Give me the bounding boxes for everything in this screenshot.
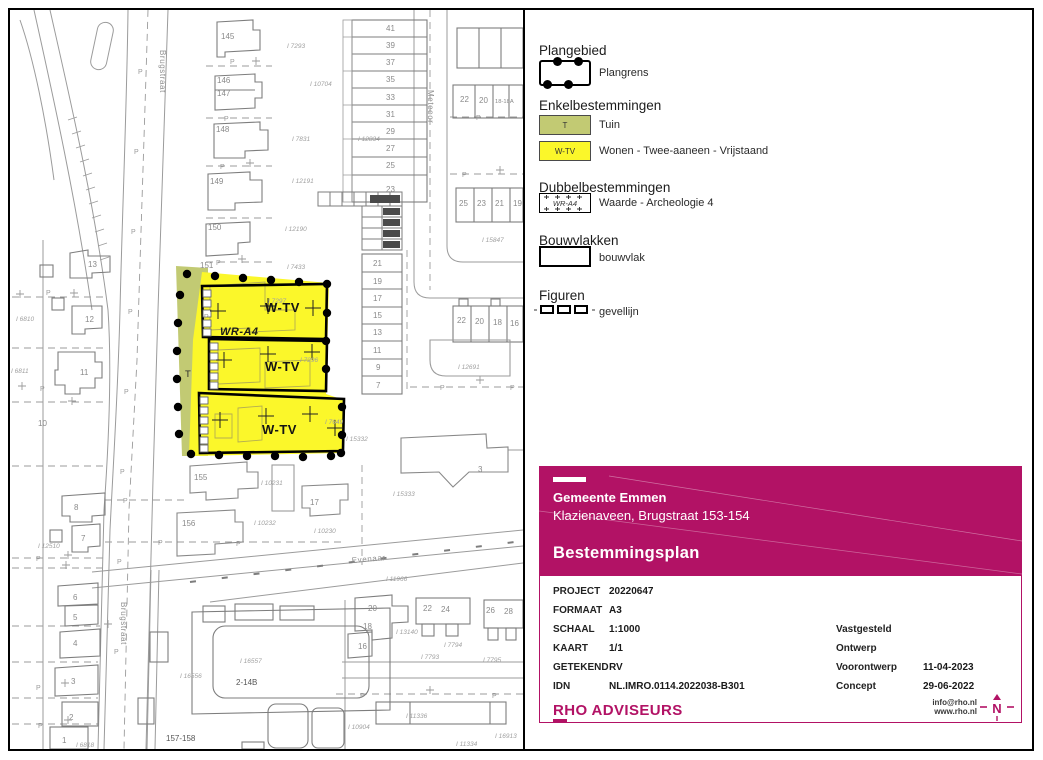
svg-text:23: 23 — [386, 185, 395, 194]
svg-text:I 12190: I 12190 — [285, 226, 307, 233]
svg-text:23: 23 — [477, 199, 486, 208]
svg-text:I 7649: I 7649 — [325, 419, 343, 426]
gevellijn-end-dot — [592, 309, 595, 311]
plan-area: W-TV W-TV W-TV WR-A4 T — [173, 266, 346, 461]
svg-text:20: 20 — [368, 604, 377, 613]
info-label: SCHAAL — [553, 624, 595, 635]
svg-text:19: 19 — [513, 199, 522, 208]
info-value: 20220647 — [609, 586, 654, 597]
svg-text:I 6818: I 6818 — [76, 742, 94, 749]
svg-text:17: 17 — [310, 498, 319, 507]
svg-text:7: 7 — [376, 381, 381, 390]
contact-website: www.rho.nl — [932, 707, 977, 716]
svg-text:17: 17 — [373, 294, 382, 303]
svg-text:8: 8 — [74, 503, 79, 512]
svg-text:I 10704: I 10704 — [310, 81, 332, 88]
svg-text:I 16556: I 16556 — [180, 673, 202, 680]
street-evenaar: Evenaar — [351, 553, 386, 565]
svg-text:33: 33 — [386, 93, 395, 102]
svg-text:I 15847: I 15847 — [482, 237, 504, 244]
info-value: A3 — [609, 605, 622, 616]
svg-text:2: 2 — [69, 713, 74, 722]
bouwvlak-swatch — [539, 246, 591, 267]
north-arrow-icon: N — [979, 692, 1015, 722]
svg-text:P: P — [40, 386, 45, 393]
legend-label-bouwvlak: bouwvlak — [599, 252, 645, 264]
svg-text:18: 18 — [363, 622, 372, 631]
svg-text:16: 16 — [510, 319, 519, 328]
zone-label-wtv-3: W-TV — [262, 422, 297, 437]
svg-text:I 6811: I 6811 — [11, 368, 29, 375]
zoning-map: W-TV W-TV W-TV WR-A4 T Brugstraat Brugst… — [10, 10, 523, 749]
svg-text:11: 11 — [373, 346, 382, 355]
municipality: Gemeente Emmen — [553, 490, 666, 505]
svg-text:20: 20 — [475, 317, 484, 326]
legend-title-enkel: Enkelbestemmingen — [539, 98, 661, 113]
svg-text:31: 31 — [386, 110, 395, 119]
svg-text:27: 27 — [386, 144, 395, 153]
svg-text:I 7795: I 7795 — [483, 657, 501, 664]
info-value: 1/1 — [609, 643, 623, 654]
plangrens-symbol — [539, 60, 591, 86]
svg-text:I 7794: I 7794 — [444, 642, 462, 649]
svg-text:P: P — [230, 59, 235, 66]
svg-text:12: 12 — [85, 315, 94, 324]
svg-text:4: 4 — [73, 639, 78, 648]
svg-text:P: P — [128, 309, 133, 316]
svg-text:13: 13 — [88, 260, 97, 269]
sheet-border: W-TV W-TV W-TV WR-A4 T Brugstraat Brugst… — [8, 8, 1034, 751]
status-label: Voorontwerp — [836, 662, 897, 673]
svg-text:156: 156 — [182, 519, 196, 528]
svg-text:I 12834: I 12834 — [358, 136, 380, 143]
svg-text:I 16913: I 16913 — [495, 733, 517, 740]
wra4-swatch: WR-A4 — [539, 193, 591, 213]
svg-text:P: P — [476, 115, 481, 122]
svg-text:150: 150 — [208, 223, 222, 232]
svg-text:21: 21 — [495, 199, 504, 208]
status-label: Vastgesteld — [836, 624, 892, 635]
svg-text:20: 20 — [479, 96, 488, 105]
svg-text:146: 146 — [217, 76, 231, 85]
svg-text:41: 41 — [386, 24, 395, 33]
svg-text:11: 11 — [80, 368, 89, 377]
plan-location: Klazienaveen, Brugstraat 153-154 — [553, 508, 750, 523]
wra4-code: WR-A4 — [540, 199, 590, 208]
svg-text:P: P — [114, 649, 119, 656]
gevellijn-end-dot — [534, 309, 537, 311]
wtv-swatch: W-TV — [539, 141, 591, 161]
svg-text:22: 22 — [457, 316, 466, 325]
legend-title-plangebied: Plangebied — [539, 43, 607, 58]
info-label: PROJECT — [553, 586, 600, 597]
wtv-code: W-TV — [555, 147, 575, 156]
svg-text:24: 24 — [441, 605, 450, 614]
svg-text:39: 39 — [386, 41, 395, 50]
svg-text:7: 7 — [81, 534, 86, 543]
title-block-dash — [553, 477, 586, 482]
title-block: Gemeente Emmen Klazienaveen, Brugstraat … — [539, 466, 1022, 575]
gevellijn-box — [557, 305, 571, 314]
svg-text:22: 22 — [423, 604, 432, 613]
info-value: RV — [609, 662, 623, 673]
svg-text:19: 19 — [373, 277, 382, 286]
svg-text:P: P — [204, 314, 209, 321]
svg-text:1: 1 — [62, 736, 67, 745]
garage-boxes — [318, 192, 402, 250]
svg-text:P: P — [36, 685, 41, 692]
north-letter: N — [992, 701, 1001, 716]
legend-label-tuin: Tuin — [599, 119, 620, 131]
svg-text:I 12510: I 12510 — [38, 543, 60, 550]
info-value: 1:1000 — [609, 624, 640, 635]
street-brugstraat-top: Brugstraat — [158, 50, 167, 93]
gevellijn-box — [540, 305, 554, 314]
project-info-block: PROJECT 20220647 FORMAAT A3 SCHAAL 1:100… — [539, 575, 1022, 723]
plangrens-dot — [564, 80, 573, 89]
svg-text:25: 25 — [386, 161, 395, 170]
plan-type: Bestemmingsplan — [553, 544, 700, 563]
tuin-swatch: T — [539, 115, 591, 135]
legend-label-gevellijn: gevellijn — [599, 306, 639, 318]
status-date: 29-06-2022 — [923, 681, 974, 692]
plangrens-dot — [553, 57, 562, 66]
street-meteoor: Meteoor — [426, 90, 435, 124]
status-label: Ontwerp — [836, 643, 877, 654]
svg-text:37: 37 — [386, 58, 395, 67]
svg-text:P: P — [131, 229, 136, 236]
svg-text:P: P — [440, 385, 445, 392]
contact-info: info@rho.nl www.rho.nl — [932, 698, 977, 716]
svg-text:I 7296: I 7296 — [300, 357, 318, 364]
svg-text:I 13140: I 13140 — [396, 629, 418, 636]
svg-text:I 6810: I 6810 — [16, 316, 34, 323]
zone-label-t: T — [185, 369, 191, 380]
svg-text:P: P — [38, 723, 43, 730]
svg-text:P: P — [36, 556, 41, 563]
svg-text:I 12191: I 12191 — [292, 178, 314, 185]
info-label: GETEKEND — [553, 662, 609, 673]
svg-text:P: P — [236, 541, 241, 548]
svg-text:I 7433: I 7433 — [287, 264, 305, 271]
svg-text:I 10904: I 10904 — [348, 724, 370, 731]
legend-title-figuren: Figuren — [539, 288, 585, 303]
svg-text:P: P — [120, 469, 125, 476]
svg-text:3: 3 — [478, 465, 483, 474]
svg-text:2-14B: 2-14B — [236, 678, 257, 687]
svg-text:147: 147 — [217, 89, 231, 98]
zone-label-wtv-2: W-TV — [265, 359, 300, 374]
plangrens-dot — [574, 57, 583, 66]
svg-text:P: P — [158, 540, 163, 547]
svg-text:I 12691: I 12691 — [458, 364, 480, 371]
svg-text:35: 35 — [386, 75, 395, 84]
svg-text:P: P — [462, 172, 467, 179]
svg-text:21: 21 — [373, 259, 382, 268]
legend-panel: Plangebied Plangrens Enkelbestemmingen T… — [525, 10, 1032, 749]
svg-text:149: 149 — [210, 177, 224, 186]
plangrens-dot — [543, 80, 552, 89]
svg-text:25: 25 — [459, 199, 468, 208]
svg-text:P: P — [220, 164, 225, 171]
svg-text:I 10230: I 10230 — [314, 528, 336, 535]
company-logo-dash — [553, 719, 567, 722]
svg-text:I 7293: I 7293 — [287, 43, 305, 50]
svg-text:P: P — [123, 498, 128, 505]
legend-label-wra4: Waarde - Archeologie 4 — [599, 197, 714, 209]
svg-text:I 11966: I 11966 — [386, 576, 408, 583]
street-brugstraat-bottom: Brugstraat — [119, 602, 128, 645]
svg-text:13: 13 — [373, 328, 382, 337]
svg-text:28: 28 — [504, 607, 513, 616]
svg-text:9: 9 — [376, 363, 381, 372]
svg-text:157-158: 157-158 — [166, 734, 196, 743]
svg-text:145: 145 — [221, 32, 235, 41]
svg-text:22: 22 — [460, 95, 469, 104]
info-value: NL.IMRO.0114.2022038-B301 — [609, 681, 745, 692]
svg-text:3: 3 — [71, 677, 76, 686]
tuin-code: T — [563, 121, 568, 130]
plan-sheet: W-TV W-TV W-TV WR-A4 T Brugstraat Brugst… — [0, 0, 1043, 760]
svg-text:P: P — [134, 149, 139, 156]
svg-text:I 11336: I 11336 — [406, 713, 428, 720]
status-date: 11-04-2023 — [923, 662, 974, 673]
svg-text:P: P — [492, 693, 497, 700]
svg-text:15: 15 — [373, 311, 382, 320]
svg-text:151: 151 — [200, 261, 214, 270]
svg-text:I 15333: I 15333 — [393, 491, 415, 498]
svg-text:18: 18 — [493, 318, 502, 327]
contact-email: info@rho.nl — [932, 698, 977, 707]
svg-text:10: 10 — [38, 419, 47, 428]
svg-text:P: P — [117, 559, 122, 566]
svg-text:P: P — [216, 260, 221, 267]
legend-label-wtv: Wonen - Twee-aaneen - Vrijstaand — [599, 145, 768, 157]
parcels-21-7 — [362, 254, 402, 394]
svg-text:I 16557: I 16557 — [240, 658, 262, 665]
svg-text:P: P — [46, 290, 51, 297]
svg-text:I 7831: I 7831 — [292, 136, 310, 143]
svg-text:P: P — [510, 385, 515, 392]
svg-text:5: 5 — [73, 613, 78, 622]
svg-text:I 10232: I 10232 — [254, 520, 276, 527]
company-logo: RHO ADVISEURS — [553, 702, 683, 719]
legend-label-plangrens: Plangrens — [599, 67, 649, 79]
buildings-bottom — [138, 595, 523, 749]
svg-text:I 7297: I 7297 — [268, 298, 286, 305]
svg-text:I 7793: I 7793 — [421, 654, 439, 661]
svg-text:18-18A: 18-18A — [495, 99, 514, 105]
svg-text:6: 6 — [73, 593, 78, 602]
svg-text:P: P — [360, 693, 365, 700]
status-label: Concept — [836, 681, 876, 692]
svg-text:I 15332: I 15332 — [346, 436, 368, 443]
map-area: W-TV W-TV W-TV WR-A4 T Brugstraat Brugst… — [10, 10, 525, 749]
svg-text:P: P — [138, 69, 143, 76]
info-label: FORMAAT — [553, 605, 602, 616]
svg-text:P: P — [224, 116, 229, 123]
svg-text:29: 29 — [386, 127, 395, 136]
svg-text:148: 148 — [216, 125, 230, 134]
svg-text:I 11334: I 11334 — [456, 741, 478, 748]
gevellijn-box — [574, 305, 588, 314]
info-label: IDN — [553, 681, 570, 692]
buildings-145-151 — [206, 20, 268, 256]
svg-text:P: P — [124, 389, 129, 396]
svg-text:26: 26 — [486, 606, 495, 615]
info-label: KAART — [553, 643, 588, 654]
svg-text:I 10231: I 10231 — [261, 480, 283, 487]
svg-text:16: 16 — [358, 642, 367, 651]
svg-text:155: 155 — [194, 473, 208, 482]
zone-label-wra4: WR-A4 — [220, 326, 259, 338]
